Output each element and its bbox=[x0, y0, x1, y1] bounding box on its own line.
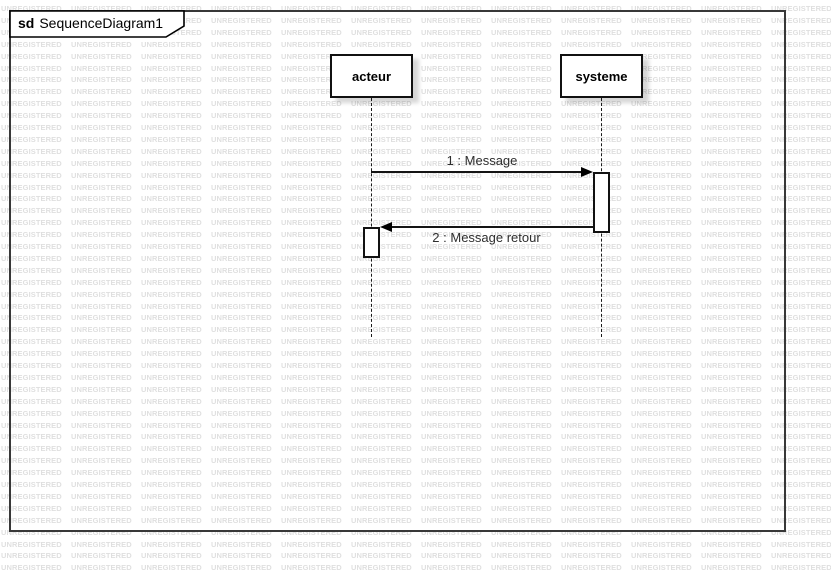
lifeline-head-systeme[interactable]: systeme bbox=[560, 54, 643, 98]
frame-title-text: SequenceDiagram1 bbox=[39, 15, 163, 31]
lifeline-acteur[interactable] bbox=[371, 98, 372, 337]
lifeline-head-acteur[interactable]: acteur bbox=[330, 54, 413, 98]
frame-keyword: sd bbox=[18, 15, 34, 31]
activation-bar-acteur[interactable] bbox=[363, 227, 380, 258]
frame-title[interactable]: sdSequenceDiagram1 bbox=[9, 10, 183, 37]
lifeline-name-acteur: acteur bbox=[352, 69, 391, 84]
lifeline-name-systeme: systeme bbox=[575, 69, 627, 84]
message-2-line[interactable] bbox=[391, 226, 593, 228]
message-1-line[interactable] bbox=[371, 171, 582, 173]
activation-bar-systeme[interactable] bbox=[593, 172, 610, 233]
message-2-label[interactable]: 2 : Message retour bbox=[380, 230, 593, 246]
diagram-canvas: UNREGISTEREDUNREGISTEREDUNREGISTEREDUNRE… bbox=[0, 0, 831, 577]
message-1-label[interactable]: 1 : Message bbox=[371, 153, 593, 169]
watermark-row: UNREGISTEREDUNREGISTEREDUNREGISTEREDUNRE… bbox=[1, 569, 831, 577]
